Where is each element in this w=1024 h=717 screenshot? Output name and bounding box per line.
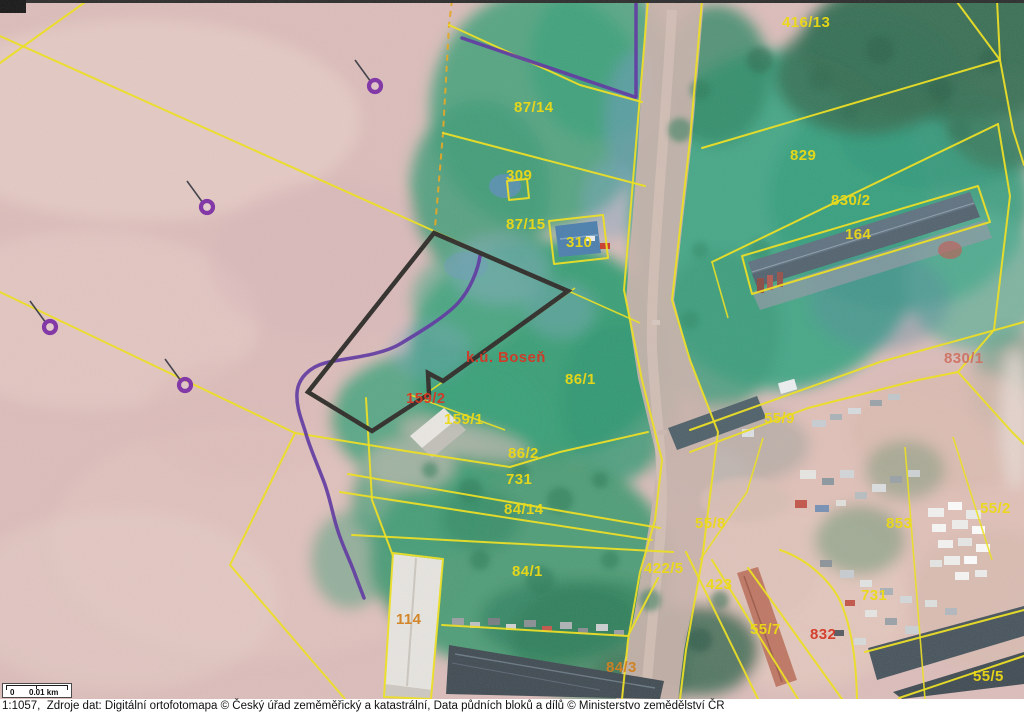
parcel-label: 86/1 bbox=[565, 371, 596, 388]
parcel-label: 416/13 bbox=[782, 14, 830, 31]
parcel-label: 55/5 bbox=[973, 668, 1004, 685]
parcel-label: 55/7 bbox=[750, 621, 781, 638]
orthophoto-map: 416/1387/1430987/15310829830/216486/1159… bbox=[0, 0, 1024, 699]
parcel-label: 832 bbox=[810, 626, 836, 643]
cadastral-area-label: k.ú. Boseň bbox=[466, 349, 546, 366]
parcel-label: 309 bbox=[506, 167, 532, 184]
parcel-label: 87/14 bbox=[514, 99, 554, 116]
parcel-label: 853 bbox=[886, 515, 912, 532]
parcel-label: 84/3 bbox=[606, 659, 637, 676]
parcel-label: 830/2 bbox=[831, 192, 871, 209]
scale-bar-distance: 0.01 km bbox=[29, 688, 58, 697]
parcel-label: 731 bbox=[506, 471, 532, 488]
parcel-label: 159/1 bbox=[444, 411, 484, 428]
parcel-label: 310 bbox=[566, 234, 592, 251]
parcel-label: 55/8 bbox=[695, 515, 726, 532]
scale-bar-line bbox=[6, 685, 68, 686]
parcel-label: 830/1 bbox=[944, 350, 984, 367]
attribution-bar: 1:1057, Zdroje dat: Digitální ortofotoma… bbox=[0, 699, 1024, 717]
map-document: 416/1387/1430987/15310829830/216486/1159… bbox=[0, 0, 1024, 717]
parcel-label: 114 bbox=[396, 611, 422, 628]
parcel-label: 422/5 bbox=[644, 560, 684, 577]
parcel-label: 829 bbox=[790, 147, 816, 164]
parcel-label: 164 bbox=[845, 226, 871, 243]
parcel-label: 84/14 bbox=[504, 501, 544, 518]
parcel-label: 731 bbox=[861, 587, 887, 604]
parcel-label: 159/2 bbox=[406, 390, 446, 407]
parcel-label: 87/15 bbox=[506, 216, 546, 233]
map-scale-bar: 0 0.01 km bbox=[2, 683, 72, 698]
attribution-text: 1:1057, Zdroje dat: Digitální ortofotoma… bbox=[2, 700, 725, 712]
map-canvas: 416/1387/1430987/15310829830/216486/1159… bbox=[0, 0, 1024, 699]
parcel-label: 55/9 bbox=[764, 410, 795, 427]
parcel-label: 55/2 bbox=[980, 500, 1011, 517]
parcel-label: 86/2 bbox=[508, 445, 539, 462]
parcel-label: 84/1 bbox=[512, 563, 543, 580]
parcel-label: 423 bbox=[706, 576, 732, 593]
scale-bar-zero: 0 bbox=[10, 688, 14, 697]
